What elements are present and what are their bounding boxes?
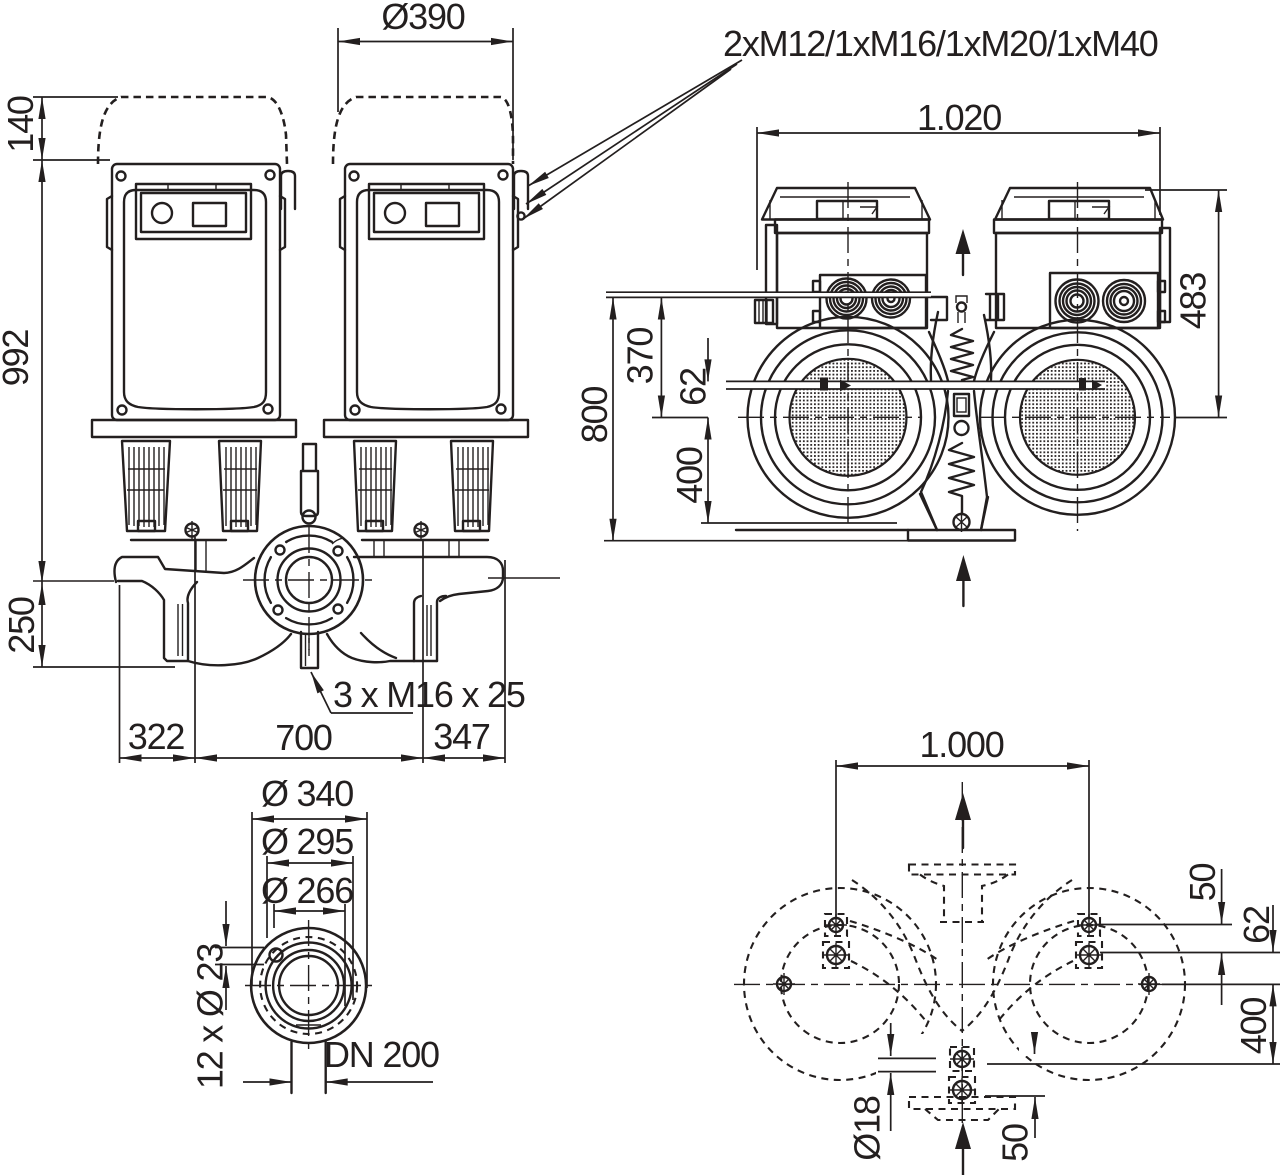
svg-text:Ø 295: Ø 295	[261, 821, 353, 862]
svg-text:400: 400	[1233, 998, 1274, 1055]
svg-text:DN 200: DN 200	[324, 1034, 439, 1075]
svg-text:Ø390: Ø390	[381, 0, 464, 37]
svg-text:370: 370	[620, 328, 661, 385]
svg-text:250: 250	[1, 597, 42, 654]
svg-text:50: 50	[995, 1124, 1036, 1162]
svg-text:347: 347	[433, 716, 490, 757]
svg-text:700: 700	[275, 717, 332, 758]
svg-text:483: 483	[1173, 273, 1214, 330]
svg-text:2xM12/1xM16/1xM20/1xM40: 2xM12/1xM16/1xM20/1xM40	[723, 23, 1158, 64]
svg-text:322: 322	[128, 716, 185, 757]
svg-text:50: 50	[1182, 864, 1223, 902]
svg-text:62: 62	[1236, 906, 1277, 944]
svg-text:3 x M16 x 25: 3 x M16 x 25	[333, 674, 525, 715]
svg-text:1.020: 1.020	[917, 97, 1001, 138]
svg-text:12 x Ø 23: 12 x Ø 23	[190, 944, 231, 1089]
svg-text:Ø 340: Ø 340	[261, 773, 353, 814]
svg-text:1.000: 1.000	[919, 724, 1003, 765]
svg-text:Ø18: Ø18	[847, 1096, 888, 1161]
svg-text:992: 992	[0, 330, 36, 387]
svg-text:800: 800	[574, 387, 615, 444]
svg-text:140: 140	[0, 96, 41, 153]
svg-text:62: 62	[673, 368, 714, 406]
svg-text:400: 400	[669, 447, 710, 504]
